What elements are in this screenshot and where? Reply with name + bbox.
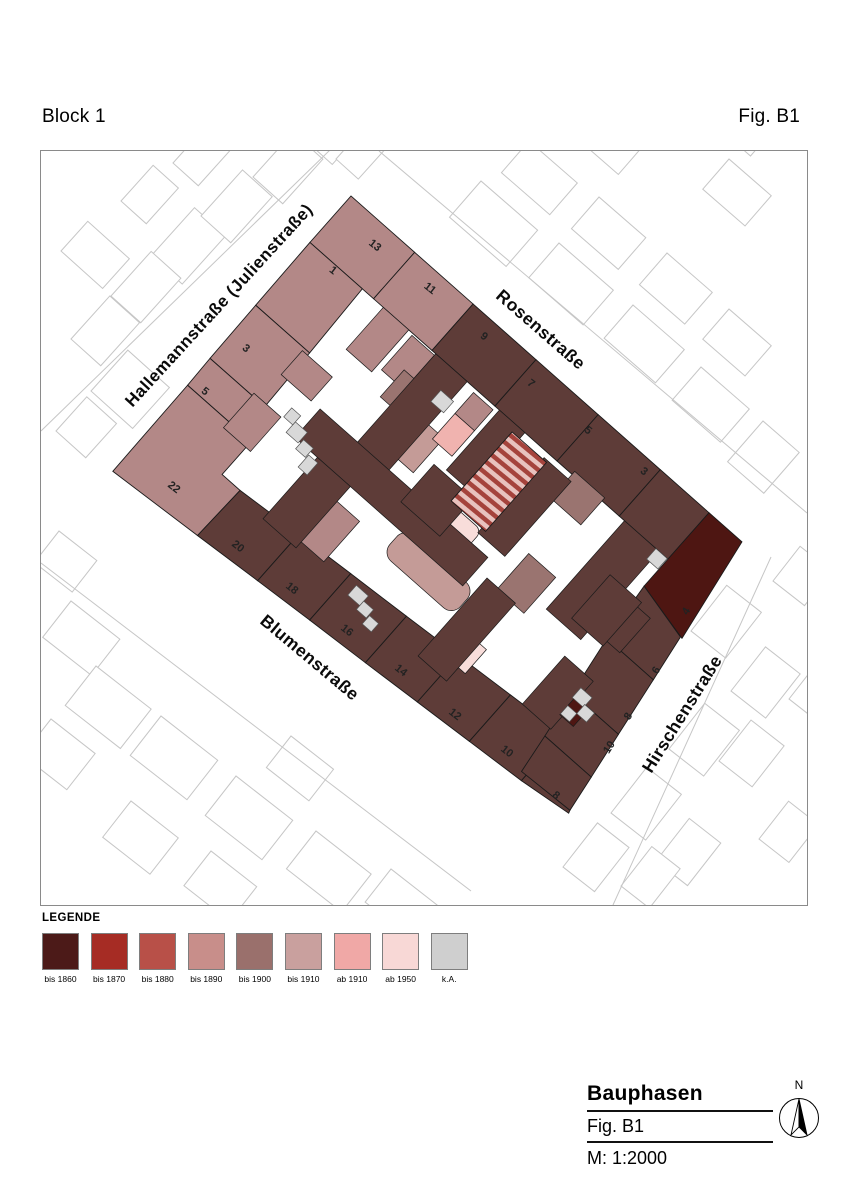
background-parcel — [173, 151, 230, 186]
legend-label: ab 1910 — [334, 974, 371, 984]
needle-east — [799, 1099, 807, 1135]
background-parcel — [501, 151, 577, 215]
background-parcel — [121, 165, 178, 223]
legend-label: k.A. — [431, 974, 468, 984]
background-parcel — [731, 647, 800, 718]
legend-label: ab 1950 — [382, 974, 419, 984]
legend-swatch — [285, 933, 322, 970]
legend-label: bis 1900 — [236, 974, 273, 984]
background-parcel — [639, 253, 712, 324]
background-parcel — [205, 776, 293, 860]
legend-label: bis 1910 — [285, 974, 322, 984]
background-parcel — [41, 719, 95, 790]
legend-swatch — [188, 933, 225, 970]
legend-swatch — [382, 933, 419, 970]
background-parcel — [563, 823, 629, 892]
figure-label: Fig. B1 — [587, 1116, 773, 1137]
shed-building — [284, 408, 301, 425]
background-parcel — [713, 151, 777, 156]
map-frame: 1352213119753468101081214161820Hallemann… — [40, 150, 808, 906]
legend-swatch — [236, 933, 273, 970]
legend-swatch — [42, 933, 79, 970]
legend-heading: LEGENDE — [42, 912, 479, 924]
legend-item: k.A. — [431, 933, 468, 984]
legend-label: bis 1870 — [91, 974, 128, 984]
legend-swatch — [91, 933, 128, 970]
background-parcel — [450, 181, 538, 266]
map-title: Bauphasen — [587, 1082, 773, 1106]
background-parcel — [103, 801, 179, 874]
background-parcel — [266, 736, 333, 801]
background-parcel — [576, 151, 643, 174]
legend-label: bis 1890 — [188, 974, 225, 984]
background-parcel — [130, 716, 218, 800]
scale-label: M: 1:2000 — [587, 1148, 773, 1169]
legend-item: bis 1860 — [42, 933, 79, 984]
background-parcel — [728, 421, 800, 493]
north-arrow: N — [770, 1076, 828, 1144]
legend-item: bis 1880 — [139, 933, 176, 984]
legend-item: ab 1950 — [382, 933, 419, 984]
background-parcel — [43, 601, 120, 675]
legend-swatch — [139, 933, 176, 970]
divider — [587, 1110, 773, 1112]
legend-item: bis 1870 — [91, 933, 128, 984]
divider — [587, 1141, 773, 1143]
legend-item: bis 1910 — [285, 933, 322, 984]
background-parcel — [286, 831, 371, 905]
background-parcel — [41, 531, 97, 592]
legend: LEGENDE bis 1860bis 1870bis 1880bis 1890… — [42, 912, 479, 984]
background-parcel — [773, 546, 807, 605]
legend-swatch — [334, 933, 371, 970]
legend-swatch — [431, 933, 468, 970]
background-parcel — [703, 309, 772, 376]
background-parcel — [61, 221, 129, 288]
legend-item: bis 1890 — [188, 933, 225, 984]
page-title: Block 1 — [42, 106, 106, 128]
background-parcel — [529, 243, 614, 325]
background-parcel — [65, 666, 151, 748]
building-phases-map: 1352213119753468101081214161820Hallemann… — [41, 151, 807, 905]
legend-label: bis 1880 — [139, 974, 176, 984]
background-parcel — [571, 197, 645, 269]
legend-item: ab 1910 — [334, 933, 371, 984]
background-parcel — [336, 151, 385, 179]
legend-label: bis 1860 — [42, 974, 79, 984]
figure-number: Fig. B1 — [738, 106, 800, 128]
background-parcel — [184, 851, 257, 905]
title-block: Bauphasen Fig. B1 M: 1:2000 — [587, 1082, 773, 1169]
background-parcel — [703, 159, 772, 226]
background-parcel — [759, 801, 807, 862]
legend-row: bis 1860bis 1870bis 1880bis 1890bis 1900… — [42, 933, 479, 984]
background-parcel — [365, 869, 440, 905]
legend-item: bis 1900 — [236, 933, 273, 984]
needle-west — [791, 1099, 799, 1135]
background-parcel — [604, 305, 684, 383]
north-label: N — [795, 1078, 804, 1092]
